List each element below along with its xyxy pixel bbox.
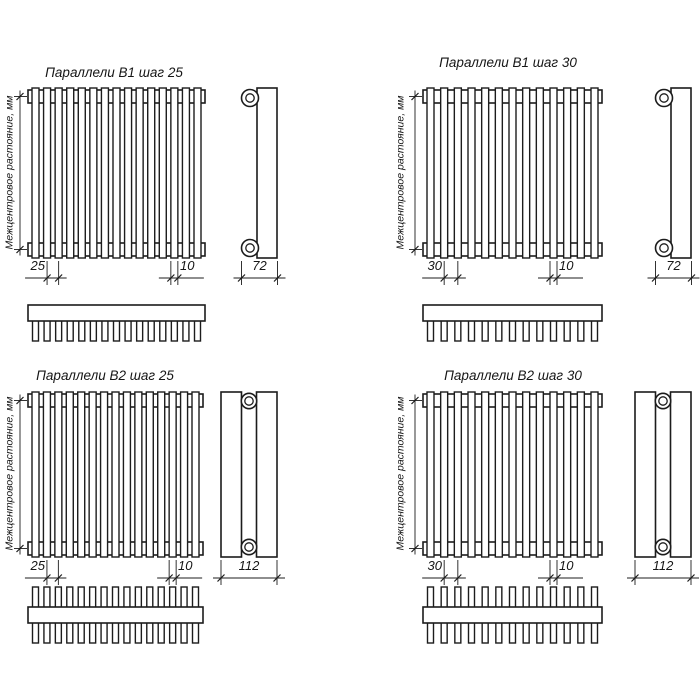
dim-depth-b2-step-30: 112 (645, 559, 681, 573)
axis-label-b2-step-25: Межцентровое растояние, мм (5, 389, 18, 559)
quadrant-b1-step-30 (409, 88, 700, 341)
dim-tube-b2-step-30: 10 (559, 559, 573, 573)
title-b2-step-30: Параллели В2 шаг 30 (413, 369, 613, 383)
dim-depth-b2-step-25: 112 (231, 559, 267, 573)
dim-step-b2-step-30: 30 (420, 559, 442, 573)
dim-tube-b1-step-30: 10 (559, 259, 573, 273)
drawing-canvas: Параллели В1 шаг 25 Параллели В1 шаг 30 … (0, 0, 700, 700)
dim-depth-b1-step-30: 72 (658, 259, 689, 273)
quadrant-b2-step-25 (14, 392, 285, 643)
dim-step-b2-step-25: 25 (24, 559, 45, 573)
axis-label-b1-step-25: Межцентровое растояние, мм (5, 88, 18, 258)
drawing-geometry (0, 0, 700, 700)
axis-label-b1-step-30: Межцентровое растояние, мм (396, 88, 409, 258)
dim-step-b1-step-30: 30 (420, 259, 442, 273)
dim-tube-b1-step-25: 10 (180, 259, 194, 273)
title-b1-step-25: Параллели В1 шаг 25 (14, 66, 214, 80)
title-b2-step-25: Параллели В2 шаг 25 (5, 369, 205, 383)
dim-tube-b2-step-25: 10 (178, 559, 192, 573)
quadrant-b2-step-30 (409, 392, 699, 643)
dim-depth-b1-step-25: 72 (244, 259, 275, 273)
dim-step-b1-step-25: 25 (24, 259, 45, 273)
title-b1-step-30: Параллели В1 шаг 30 (408, 56, 608, 70)
axis-label-b2-step-30: Межцентровое растояние, мм (396, 389, 409, 559)
quadrant-b1-step-25 (14, 88, 286, 341)
